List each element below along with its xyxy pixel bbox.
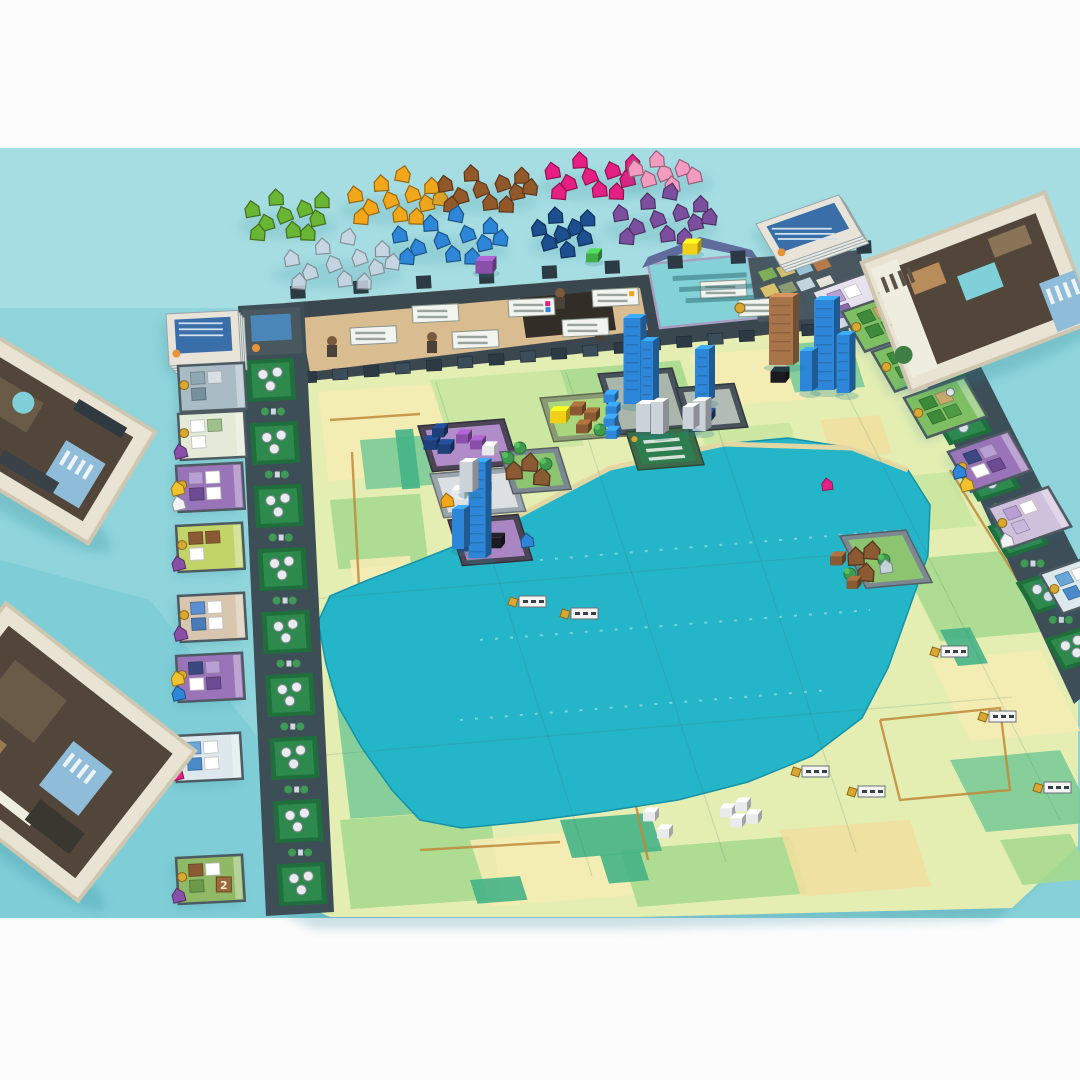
map-sign [978,711,1016,722]
art-label [412,304,459,323]
score-space [457,357,473,369]
skyscraper-piece [682,403,702,436]
photo-stage: 2 [0,0,1080,1080]
track-tooth [730,250,746,264]
map-sign [847,786,885,797]
building-card [174,363,247,417]
map-sign [508,596,546,607]
score-space [739,330,755,342]
score-space [520,351,536,363]
score-space [426,360,442,372]
parking-tile [273,799,324,843]
score-space [332,368,348,380]
score-space [708,333,724,345]
map-sign [560,608,598,619]
map-sign [1033,782,1071,793]
parking-tile [250,421,301,465]
track-tooth [604,260,620,274]
art-label [350,326,397,345]
skyscraper-piece [458,458,481,499]
score-space [489,354,505,366]
track-tooth [416,275,432,289]
building-card [171,523,245,577]
art-label [452,330,499,349]
top-white-band [0,0,1080,148]
field-patch [780,820,931,897]
score-space [676,336,692,348]
bottom-white-band [0,918,1080,1080]
parking-tile [246,358,297,402]
parking-tile [261,610,312,654]
parking-tile [254,484,305,528]
parking-tile [269,736,320,780]
art-label [508,298,555,317]
building-card: 2 [171,855,245,909]
skyscraper-piece [650,398,672,441]
building-card [173,411,247,465]
art-label [562,318,609,337]
field-patch [470,876,528,904]
score-space [364,365,380,377]
map-sign [930,646,968,657]
score-space [583,345,599,357]
building-card [170,653,245,707]
parking-tile [277,862,328,906]
building-card [173,593,247,647]
scene-svg: 2 [0,0,1080,1080]
track-tooth [667,255,683,269]
score-space [395,362,411,374]
parking-tile [265,673,316,717]
track-tooth [542,265,558,279]
score-space [551,348,567,360]
building-card [170,463,245,517]
map-sign [791,766,829,777]
card-number: 2 [220,879,228,892]
art-label [592,288,639,307]
parking-tile [257,547,308,591]
